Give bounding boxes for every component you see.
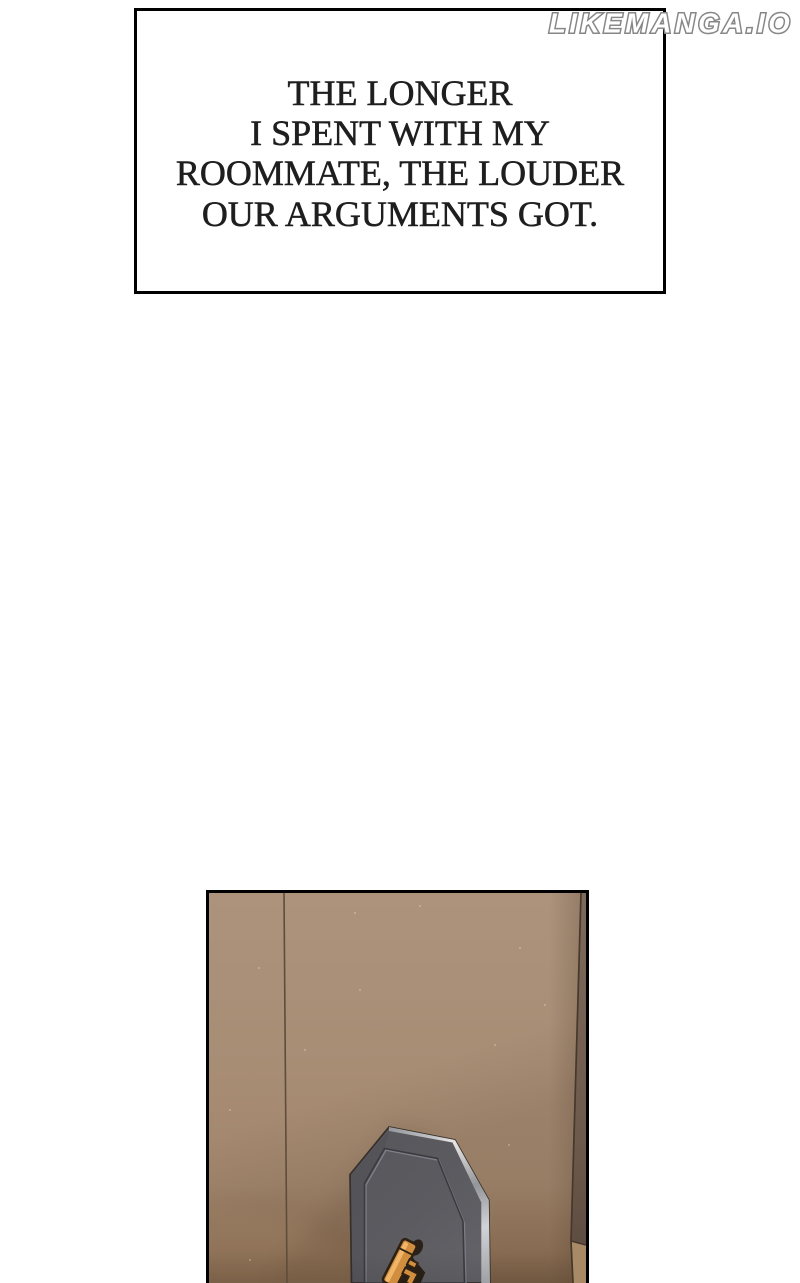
svg-text:LIKEMANGA.IO: LIKEMANGA.IO [549,8,793,39]
